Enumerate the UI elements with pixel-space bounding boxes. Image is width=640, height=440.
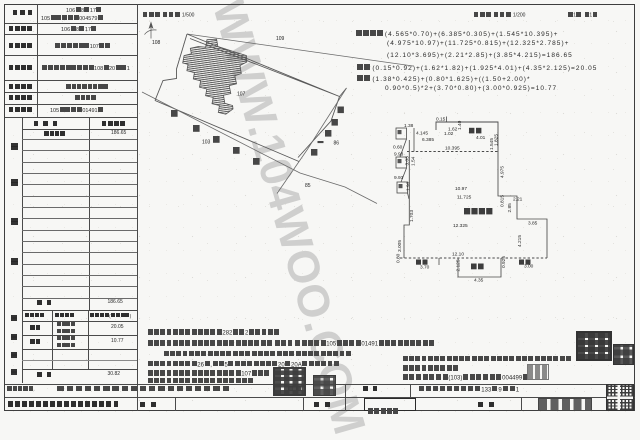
svg-text:11.725: 11.725 xyxy=(457,195,472,201)
svg-text:1.90: 1.90 xyxy=(406,181,412,191)
svg-text:1.54: 1.54 xyxy=(411,156,417,166)
svg-text:85: 85 xyxy=(305,183,311,189)
svg-text:10.395: 10.395 xyxy=(445,146,460,152)
svg-text:4.975: 4.975 xyxy=(500,166,506,178)
svg-text:3.70: 3.70 xyxy=(420,265,430,271)
svg-text:0.60: 0.60 xyxy=(393,145,403,151)
svg-text:2.85: 2.85 xyxy=(507,203,513,213)
svg-text:4.145: 4.145 xyxy=(416,131,428,137)
svg-text:1.62: 1.62 xyxy=(448,127,458,133)
svg-text:9.93: 9.93 xyxy=(394,175,404,181)
svg-text:6.385: 6.385 xyxy=(422,137,434,143)
svg-text:108: 108 xyxy=(152,40,161,46)
svg-text:3.85: 3.85 xyxy=(528,221,538,227)
svg-text:0.815: 0.815 xyxy=(500,195,506,207)
svg-text:1.38: 1.38 xyxy=(404,123,414,129)
svg-text:1.825: 1.825 xyxy=(494,134,500,146)
svg-text:10.97: 10.97 xyxy=(455,186,467,192)
svg-text:107: 107 xyxy=(237,92,246,98)
svg-text:0.15: 0.15 xyxy=(436,117,446,123)
svg-text:3.00: 3.00 xyxy=(524,264,534,270)
svg-text:0.925: 0.925 xyxy=(501,256,507,268)
svg-text:9.93: 9.93 xyxy=(394,152,404,158)
svg-text:1.40: 1.40 xyxy=(457,120,463,130)
svg-text:4.215: 4.215 xyxy=(517,235,523,247)
svg-text:2.21: 2.21 xyxy=(513,197,523,203)
svg-text:3.03: 3.03 xyxy=(405,156,411,166)
svg-text:103: 103 xyxy=(202,140,211,146)
svg-text:4.35: 4.35 xyxy=(474,278,484,284)
svg-text:0.80: 0.80 xyxy=(396,253,402,263)
svg-text:4.01: 4.01 xyxy=(476,135,486,141)
svg-text:86: 86 xyxy=(334,141,340,147)
svg-text:12.325: 12.325 xyxy=(453,223,468,229)
svg-text:1.703: 1.703 xyxy=(409,210,415,222)
svg-text:2.125: 2.125 xyxy=(456,259,462,271)
svg-text:3.005: 3.005 xyxy=(397,240,403,252)
svg-text:12.10: 12.10 xyxy=(452,252,464,258)
svg-text:109: 109 xyxy=(276,36,285,42)
